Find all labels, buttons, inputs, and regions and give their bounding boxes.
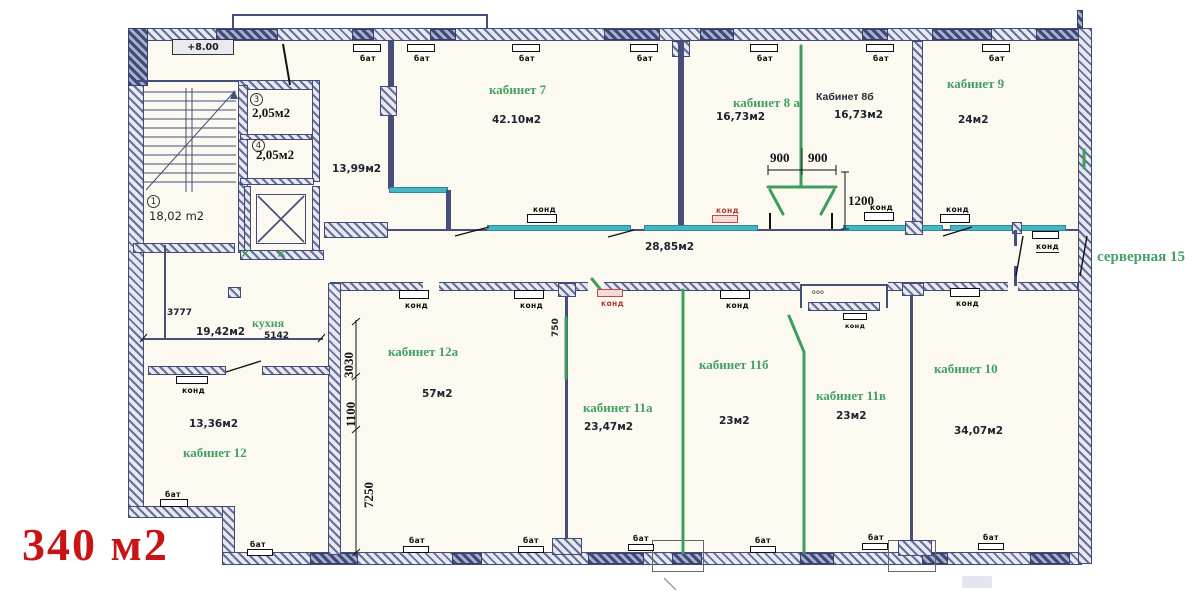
kab8a-area: 16,73м2	[716, 111, 765, 123]
radiator-box	[862, 543, 888, 550]
radiator-label: бат	[983, 533, 999, 542]
room-label-server: серверная 15	[1097, 249, 1185, 266]
kab11a-area: 23,47м2	[584, 421, 633, 433]
radiator-box	[750, 546, 776, 553]
corridor-area: 28,85м2	[645, 241, 694, 253]
radiator-box	[160, 499, 188, 507]
radiator-box	[353, 44, 381, 52]
room-label-kab11b: кабинет 11б	[699, 357, 768, 373]
room-label-kab7: кабинет 7	[489, 82, 546, 98]
kab12a-area: 57м2	[422, 388, 453, 400]
elevation-mark: +8.00	[172, 39, 234, 55]
radiator-label: бат	[637, 54, 653, 63]
kab9-area: 24м2	[958, 114, 989, 126]
dim-7250: 7250	[361, 482, 377, 508]
room-label-kab11v: кабинет 11в	[816, 388, 886, 404]
ac-label: конд	[946, 205, 969, 214]
radiator-box	[247, 549, 273, 556]
ac-box	[940, 214, 970, 223]
radiator-box	[866, 44, 894, 52]
dim-900-left: 900	[770, 150, 790, 166]
kab7-area: 42.10м2	[492, 114, 541, 126]
ac-box	[527, 214, 557, 223]
radiator-box	[407, 44, 435, 52]
radiator-label: бат	[414, 54, 430, 63]
radiator-label: бат	[873, 54, 889, 63]
room-label-kab8b: Кабинет 8б	[816, 91, 874, 103]
ac-label: конд	[520, 301, 543, 310]
radiator-label: бат	[633, 534, 649, 543]
vent-label: ooo	[812, 289, 824, 296]
ac-box	[720, 290, 750, 299]
kab8b-area: 16,73м2	[834, 109, 883, 121]
ac-label-red: конд	[716, 206, 739, 215]
room-label-kab10: кабинет 10	[934, 361, 998, 377]
radiator-box	[750, 44, 778, 52]
ac-label: конд	[405, 301, 428, 310]
radiator-label: бат	[868, 533, 884, 542]
radiator-label: бат	[757, 54, 773, 63]
ac-label: конд	[1036, 242, 1059, 253]
ac-label: конд	[182, 386, 205, 395]
plan-linework	[0, 0, 1200, 603]
kitchen-area: 19,42м2	[196, 326, 245, 338]
radiator-label: бат	[409, 536, 425, 545]
radiator-box	[512, 44, 540, 52]
radiator-label: бат	[519, 54, 535, 63]
room-label-kab12: кабинет 12	[183, 445, 247, 461]
room-label-kab11a: кабинет 11а	[583, 400, 652, 416]
ac-box	[1032, 231, 1059, 239]
dim-5142: 5142	[264, 331, 289, 341]
radiator-box	[628, 544, 654, 551]
ac-box	[950, 288, 980, 297]
kab11v-area: 23м2	[836, 410, 867, 422]
wc1-area: 2,05м2	[252, 105, 290, 121]
ac-box	[843, 313, 867, 320]
kab12-area: 13,36м2	[189, 418, 238, 430]
radiator-label: бат	[523, 536, 539, 545]
radiator-label: бат	[989, 54, 1005, 63]
ac-label: конд	[845, 322, 865, 330]
ac-label: конд	[533, 205, 556, 214]
radiator-label: бат	[250, 540, 266, 549]
ac-label: конд	[726, 301, 749, 310]
dim-1100: 1100	[343, 402, 359, 427]
radiator-box	[518, 546, 544, 553]
radiator-box	[403, 546, 429, 553]
room-label-kab12a: кабинет 12а	[388, 344, 458, 360]
ac-label: конд	[870, 203, 893, 212]
room1399-area: 13,99м2	[332, 163, 381, 175]
room-number-badge: 1	[147, 195, 160, 208]
hall-area: 18,02 m2	[149, 209, 204, 223]
ac-label-red: конд	[601, 299, 624, 308]
radiator-label: бат	[165, 490, 181, 499]
radiator-box	[978, 543, 1004, 550]
ac-box	[399, 290, 429, 299]
ac-box	[514, 290, 544, 299]
dim-3030: 3030	[341, 352, 357, 378]
dim-900-right: 900	[808, 150, 828, 166]
dim-750: 750	[551, 318, 561, 337]
ac-label: конд	[956, 299, 979, 308]
green-x-mark: ✕	[240, 247, 251, 262]
kab11b-area: 23м2	[719, 415, 750, 427]
wc2-area: 2,05м2	[256, 147, 294, 163]
ac-box-red	[597, 289, 623, 297]
radiator-box	[982, 44, 1010, 52]
ac-box	[864, 212, 894, 221]
ac-box-red	[712, 215, 738, 223]
room-label-kab9: кабинет 9	[947, 76, 1004, 92]
ac-box	[176, 376, 208, 384]
floor-plan: 340 м2 +8.00 1 18,02 m2 3 2,05м2 4 2,05м…	[0, 0, 1200, 603]
dim-3777: 3777	[167, 308, 192, 318]
room-label-kab8a: кабинет 8 а	[733, 95, 800, 111]
radiator-label: бат	[360, 54, 376, 63]
green-x-mark: ✕	[276, 247, 287, 262]
radiator-label: бат	[755, 536, 771, 545]
kab10-area: 34,07м2	[954, 425, 1003, 437]
radiator-box	[630, 44, 658, 52]
total-area-label: 340 м2	[22, 518, 169, 571]
room-label-kitchen: кухня	[252, 316, 284, 331]
